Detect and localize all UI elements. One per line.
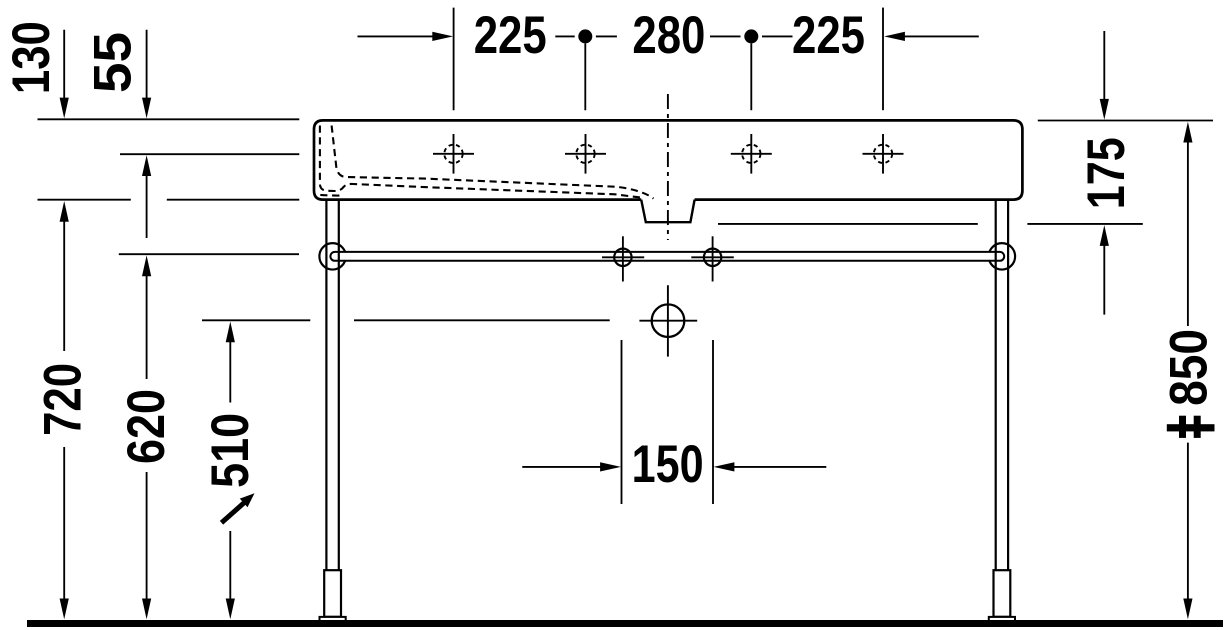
- svg-text:55: 55: [84, 32, 143, 93]
- svg-text:510: 510: [201, 413, 260, 488]
- svg-text:850: 850: [1160, 329, 1219, 406]
- svg-text:150: 150: [632, 435, 704, 494]
- svg-text:175: 175: [1077, 137, 1136, 209]
- svg-text:280: 280: [632, 6, 705, 65]
- svg-text:225: 225: [474, 6, 547, 65]
- svg-text:225: 225: [792, 6, 865, 65]
- svg-text:130: 130: [2, 21, 61, 94]
- svg-text:720: 720: [34, 363, 93, 436]
- svg-text:620: 620: [117, 389, 176, 464]
